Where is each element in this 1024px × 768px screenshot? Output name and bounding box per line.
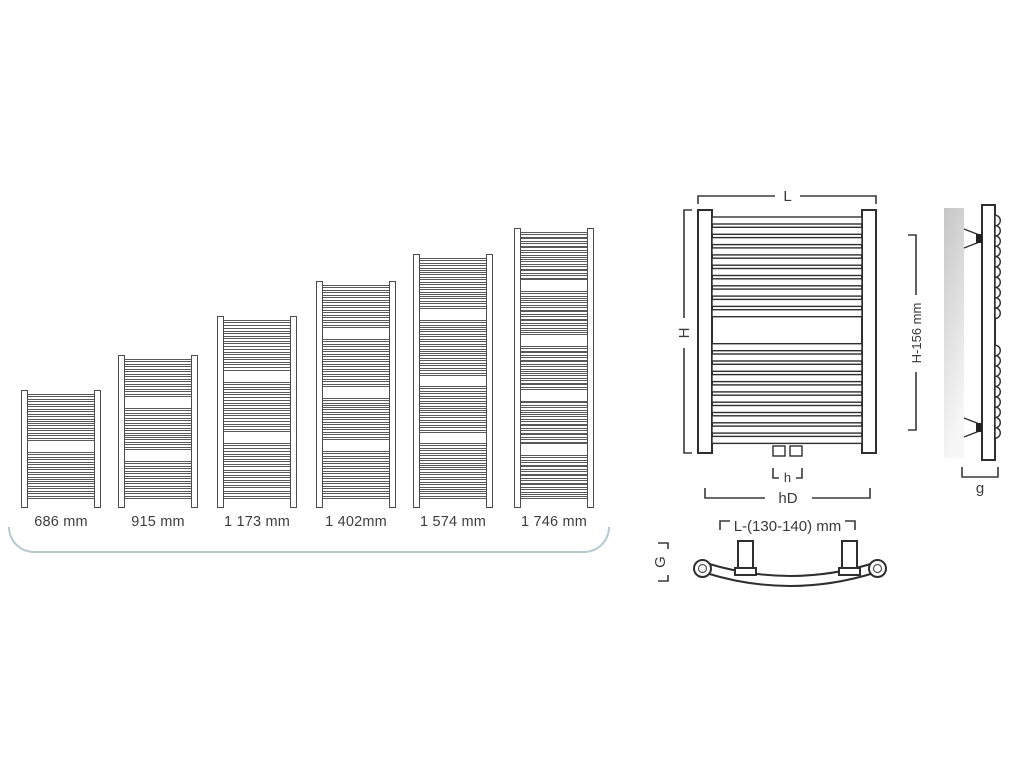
dim-label-curve-depth: G: [652, 556, 669, 568]
rung: [420, 472, 486, 475]
rung: [420, 453, 486, 456]
rung: [521, 483, 587, 486]
front-rung: [712, 227, 862, 234]
front-rung: [712, 269, 862, 276]
rung: [224, 480, 290, 483]
front-rung: [712, 238, 862, 245]
rung: [28, 423, 94, 426]
rung: [125, 418, 191, 421]
rung: [224, 475, 290, 478]
rung: [125, 496, 191, 499]
rung: [521, 487, 587, 490]
rung: [224, 341, 290, 344]
rung: [521, 296, 587, 299]
rung: [521, 474, 587, 477]
dim-label-width: L: [783, 188, 791, 205]
rung: [521, 278, 587, 281]
radiator-dimension-sheet: 686 mm915 mm1 173 mm1 402mm1 574 mm1 746…: [0, 0, 1024, 768]
rung: [323, 285, 389, 288]
rung: [323, 325, 389, 328]
rung: [521, 492, 587, 495]
radiator-thumbnail: [118, 355, 198, 508]
rung: [420, 430, 486, 433]
rung: [125, 413, 191, 416]
rung: [323, 310, 389, 313]
rung: [323, 412, 389, 415]
rung: [28, 452, 94, 455]
rung-area: [323, 285, 389, 501]
rung: [420, 277, 486, 280]
rung: [224, 408, 290, 411]
rung: [323, 369, 389, 372]
rung: [125, 437, 191, 440]
rung: [420, 401, 486, 404]
front-rung: [712, 436, 862, 443]
front-view-drawing: L H h hD: [676, 188, 876, 507]
rung: [420, 363, 486, 366]
rung: [420, 268, 486, 271]
rung: [125, 471, 191, 474]
rung: [28, 462, 94, 465]
technical-drawing: L H h hD: [640, 150, 1024, 640]
rung: [420, 420, 486, 423]
rung: [420, 329, 486, 332]
left-collector: [316, 281, 323, 508]
rung: [420, 272, 486, 275]
front-rung: [712, 426, 862, 433]
rung: [125, 466, 191, 469]
rung: [125, 369, 191, 372]
rung: [224, 470, 290, 473]
rung: [420, 477, 486, 480]
rung: [28, 419, 94, 422]
rung: [420, 353, 486, 356]
rung: [521, 428, 587, 431]
tube-bump: [995, 386, 1000, 397]
rung: [28, 433, 94, 436]
dim-label-bracket-spacing: L-(130-140) mm: [734, 518, 842, 535]
rung: [420, 358, 486, 361]
rung: [28, 457, 94, 460]
rung: [521, 437, 587, 440]
rung: [224, 424, 290, 427]
rung: [521, 269, 587, 272]
size-lineup-underline: [8, 527, 610, 553]
tube-bump: [995, 267, 1000, 278]
rung: [323, 354, 389, 357]
rung: [323, 407, 389, 410]
tube-bump: [995, 407, 1000, 418]
front-rung: [712, 248, 862, 255]
wall: [944, 208, 964, 458]
rung: [420, 282, 486, 285]
front-rung: [712, 364, 862, 371]
rung: [224, 325, 290, 328]
right-collector: [587, 228, 594, 508]
rung: [323, 471, 389, 474]
rung: [521, 433, 587, 436]
rung: [28, 409, 94, 412]
radiator-thumbnail: [217, 316, 297, 508]
left-collector: [217, 316, 224, 508]
rung: [125, 428, 191, 431]
rung: [521, 332, 587, 335]
dim-label-overall-width: hD: [778, 490, 797, 507]
rung: [420, 386, 486, 389]
rung: [224, 352, 290, 355]
rung: [323, 427, 389, 430]
rung: [28, 472, 94, 475]
rung: [420, 396, 486, 399]
rung: [224, 367, 290, 370]
rung: [323, 305, 389, 308]
tube-bump: [995, 256, 1000, 267]
rung: [420, 296, 486, 299]
rung-area: [224, 320, 290, 501]
rung: [521, 291, 587, 294]
rung: [323, 491, 389, 494]
rung: [521, 369, 587, 372]
rung: [224, 491, 290, 494]
rung: [28, 477, 94, 480]
rung: [521, 241, 587, 244]
rung: [521, 414, 587, 417]
rung: [521, 323, 587, 326]
rung: [521, 465, 587, 468]
rung: [125, 481, 191, 484]
front-rung: [712, 310, 862, 317]
rung: [125, 389, 191, 392]
rung: [420, 306, 486, 309]
rung: [224, 485, 290, 488]
rung: [521, 237, 587, 240]
rung-area: [420, 258, 486, 501]
rung: [420, 320, 486, 323]
rung: [521, 319, 587, 322]
tube-bump: [995, 356, 1000, 367]
rung: [420, 368, 486, 371]
left-collector: [413, 254, 420, 508]
rung: [28, 428, 94, 431]
left-collector: [118, 355, 125, 508]
rung: [28, 491, 94, 494]
right-collector: [486, 254, 493, 508]
rung: [420, 463, 486, 466]
rung: [521, 250, 587, 253]
rung: [521, 460, 587, 463]
radiator-thumbnail: [21, 390, 101, 508]
rung: [521, 264, 587, 267]
rung: [420, 410, 486, 413]
rung: [323, 384, 389, 387]
rung: [323, 374, 389, 377]
rung: [521, 328, 587, 331]
rung: [125, 486, 191, 489]
rung: [28, 481, 94, 484]
front-rung: [712, 279, 862, 286]
tube-bump: [995, 376, 1000, 387]
rung: [420, 415, 486, 418]
rung: [323, 349, 389, 352]
rung: [323, 451, 389, 454]
rung: [521, 360, 587, 363]
rung: [224, 443, 290, 446]
rung: [323, 315, 389, 318]
rung: [521, 478, 587, 481]
rung: [323, 486, 389, 489]
tube-bump: [995, 298, 1000, 309]
rung-area: [28, 394, 94, 501]
rung: [224, 454, 290, 457]
rung: [420, 263, 486, 266]
rung: [125, 379, 191, 382]
rung: [521, 259, 587, 262]
rung: [521, 401, 587, 404]
rung: [521, 305, 587, 308]
tube-bump: [995, 428, 1000, 439]
rung: [521, 351, 587, 354]
rung: [28, 467, 94, 470]
dim-label-height: H: [676, 328, 693, 339]
rung: [28, 486, 94, 489]
dim-label-bracket-height: H-156 mm: [909, 303, 924, 364]
rung: [521, 455, 587, 458]
rung: [521, 424, 587, 427]
rung: [323, 496, 389, 499]
front-rung: [712, 289, 862, 296]
tube-bump: [995, 308, 1000, 319]
rung: [420, 287, 486, 290]
rung: [323, 437, 389, 440]
rung: [521, 387, 587, 390]
top-view-drawing: L-(130-140) mm G: [652, 518, 886, 586]
rung: [28, 496, 94, 499]
rung: [323, 320, 389, 323]
rung: [224, 464, 290, 467]
rung: [521, 273, 587, 276]
rung: [125, 384, 191, 387]
rung: [521, 419, 587, 422]
rung: [323, 461, 389, 464]
rung: [521, 469, 587, 472]
tube-bump: [995, 345, 1000, 356]
rung: [521, 255, 587, 258]
rung: [420, 344, 486, 347]
rung: [323, 295, 389, 298]
rung: [323, 481, 389, 484]
rung: [521, 364, 587, 367]
rung: [224, 496, 290, 499]
rung: [521, 373, 587, 376]
rung: [521, 355, 587, 358]
rung: [420, 496, 486, 499]
rung: [420, 443, 486, 446]
rung: [323, 398, 389, 401]
rung: [521, 346, 587, 349]
rung: [224, 413, 290, 416]
tube-bump: [995, 246, 1000, 257]
rung: [521, 405, 587, 408]
front-rung: [712, 299, 862, 306]
rung: [224, 448, 290, 451]
rung: [323, 339, 389, 342]
rung: [224, 336, 290, 339]
side-view-drawing: H-156 mm g: [908, 205, 1000, 497]
rung: [125, 442, 191, 445]
radiator-thumbnail: [413, 254, 493, 508]
rung: [420, 339, 486, 342]
rung: [521, 442, 587, 445]
rung: [521, 378, 587, 381]
front-rung: [712, 217, 862, 224]
rung: [224, 331, 290, 334]
rung: [323, 476, 389, 479]
rung: [420, 334, 486, 337]
rung: [420, 325, 486, 328]
rung: [224, 320, 290, 323]
rung: [323, 379, 389, 382]
rung: [125, 359, 191, 362]
dim-label-connection-spacing: h: [784, 470, 791, 485]
rung: [420, 425, 486, 428]
rung: [125, 374, 191, 377]
tube-bump: [995, 215, 1000, 226]
left-collector: [21, 390, 28, 508]
rung: [420, 292, 486, 295]
right-collector: [290, 316, 297, 508]
tube-bump: [995, 277, 1000, 288]
rung: [420, 487, 486, 490]
tube-bump: [995, 417, 1000, 428]
rung: [521, 496, 587, 499]
rung: [323, 422, 389, 425]
rung: [521, 310, 587, 313]
rung: [420, 373, 486, 376]
rung: [323, 359, 389, 362]
rung: [28, 404, 94, 407]
rung: [224, 392, 290, 395]
front-rung: [712, 375, 862, 382]
rung: [521, 300, 587, 303]
rung: [521, 410, 587, 413]
rung: [420, 301, 486, 304]
rung: [224, 403, 290, 406]
rung: [323, 417, 389, 420]
rung: [420, 467, 486, 470]
rung: [323, 290, 389, 293]
rung: [28, 414, 94, 417]
rung: [521, 232, 587, 235]
tube-bump: [995, 366, 1000, 377]
rung: [224, 357, 290, 360]
rung: [420, 406, 486, 409]
tube-bump: [995, 236, 1000, 247]
rung: [521, 314, 587, 317]
tube-bump: [995, 226, 1000, 237]
rung: [323, 403, 389, 406]
rung: [28, 438, 94, 441]
rung: [521, 383, 587, 386]
rung: [125, 447, 191, 450]
front-rung: [712, 258, 862, 265]
rung: [323, 300, 389, 303]
radiator-thumbnail: [514, 228, 594, 508]
rung: [420, 258, 486, 261]
rung: [420, 482, 486, 485]
rung: [521, 246, 587, 249]
rung: [323, 466, 389, 469]
rung: [224, 418, 290, 421]
front-rung: [712, 416, 862, 423]
rung: [125, 364, 191, 367]
rung: [224, 429, 290, 432]
rung: [224, 382, 290, 385]
front-rung: [712, 395, 862, 402]
rung: [125, 394, 191, 397]
rung: [420, 391, 486, 394]
rung: [125, 491, 191, 494]
rung: [323, 456, 389, 459]
left-collector: [514, 228, 521, 508]
rung: [125, 423, 191, 426]
right-collector: [94, 390, 101, 508]
tube-bump: [995, 287, 1000, 298]
rung: [125, 408, 191, 411]
rung: [224, 362, 290, 365]
radiator-thumbnail: [316, 281, 396, 508]
right-collector: [389, 281, 396, 508]
rung: [224, 397, 290, 400]
rung: [28, 399, 94, 402]
rung: [125, 461, 191, 464]
rung: [323, 364, 389, 367]
front-rung: [712, 354, 862, 361]
rung: [420, 458, 486, 461]
front-rung: [712, 344, 862, 351]
rung: [420, 448, 486, 451]
rung: [28, 394, 94, 397]
rung: [420, 491, 486, 494]
rung: [323, 344, 389, 347]
right-collector: [191, 355, 198, 508]
rung: [420, 349, 486, 352]
rung: [125, 476, 191, 479]
rung: [125, 433, 191, 436]
rung: [224, 346, 290, 349]
front-rung: [712, 385, 862, 392]
tube-bump: [995, 397, 1000, 408]
rung-area: [521, 232, 587, 501]
dim-label-depth: g: [976, 480, 984, 497]
front-rung: [712, 406, 862, 413]
rung-area: [125, 359, 191, 501]
rung: [323, 432, 389, 435]
rung: [224, 387, 290, 390]
rung: [224, 459, 290, 462]
